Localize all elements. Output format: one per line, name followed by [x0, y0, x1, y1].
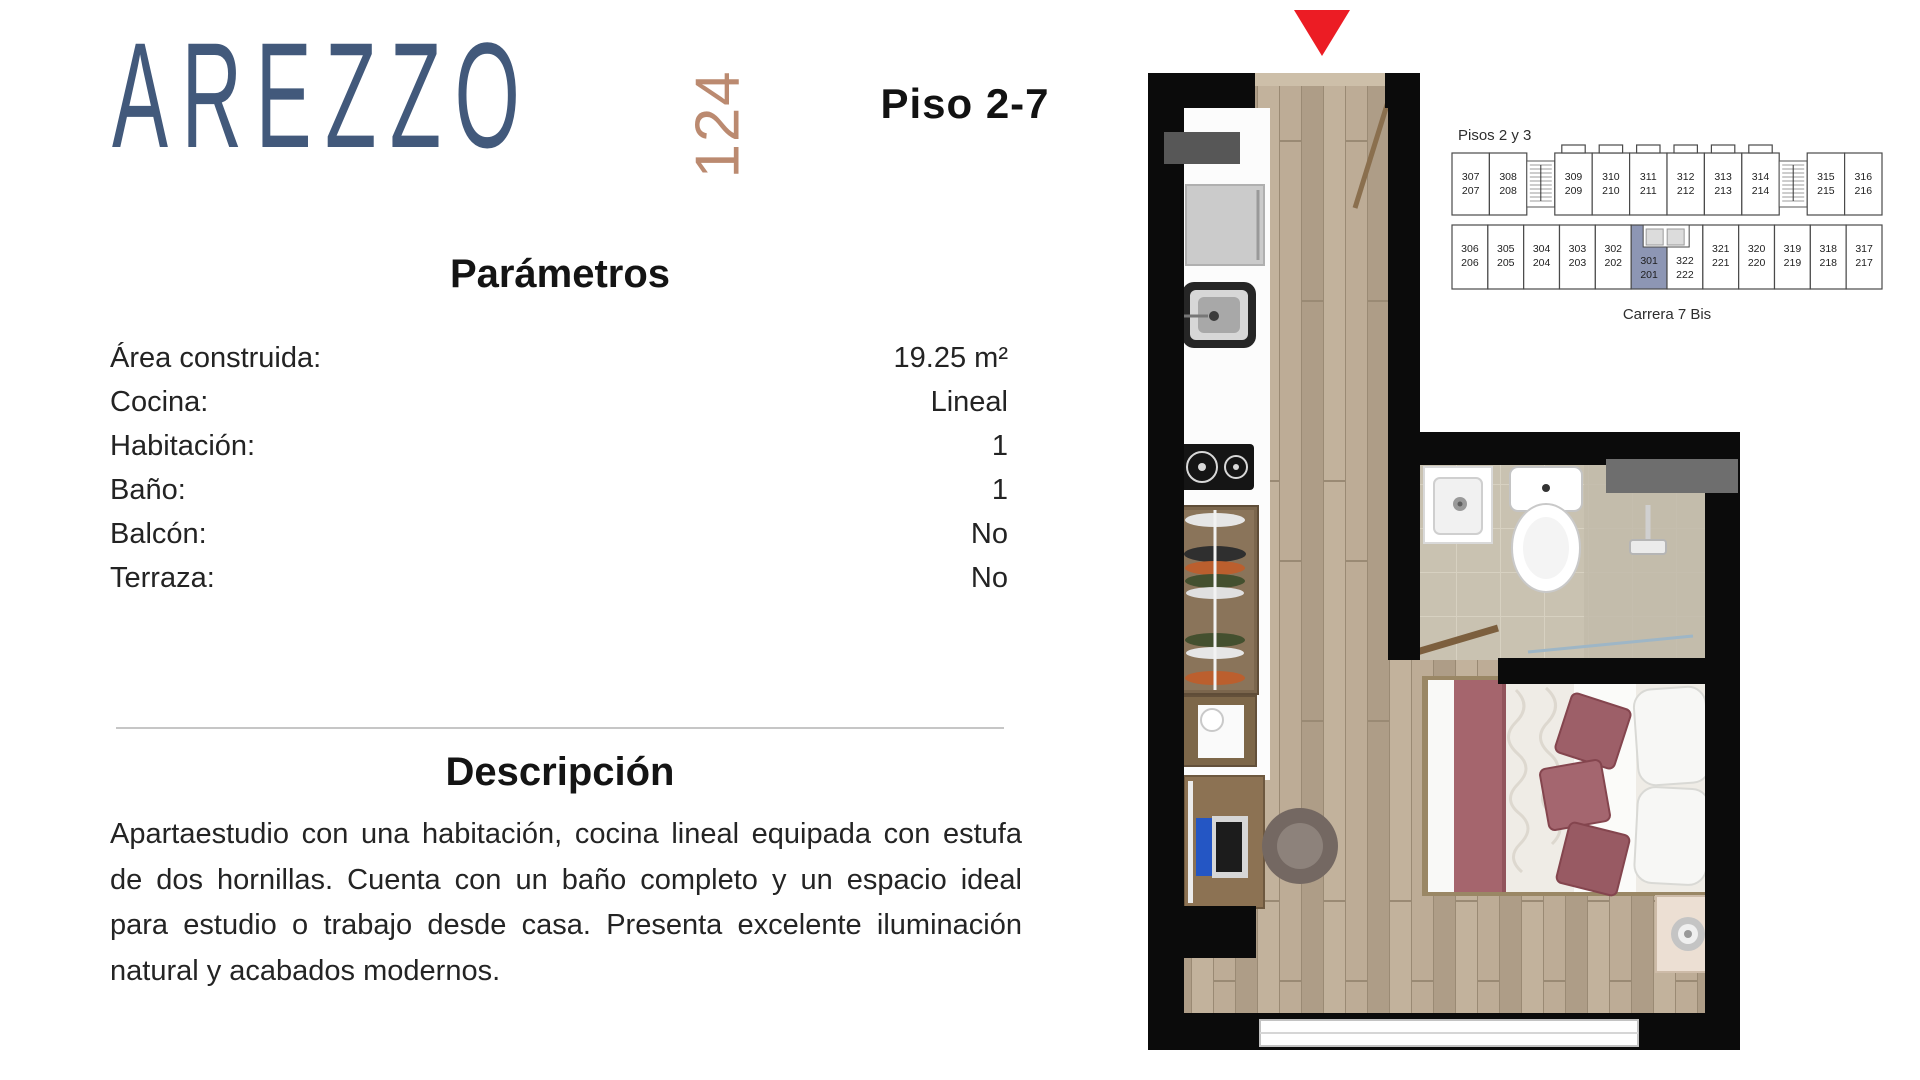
brand-name: AREZZO — [112, 20, 533, 170]
keyplan-unit — [1630, 153, 1667, 215]
brochure-page: AREZZO 124 Piso 2-7 Parámetros Área cons… — [0, 0, 1920, 1080]
svg-text:209: 209 — [1565, 185, 1583, 197]
description-body: Apartaestudio con una habitación, cocina… — [110, 812, 1022, 994]
svg-text:222: 222 — [1676, 269, 1694, 281]
svg-text:310: 310 — [1602, 171, 1620, 183]
parameter-label: Baño: — [110, 474, 186, 507]
entry-threshold — [1255, 73, 1385, 86]
keyplan-unit — [1667, 153, 1704, 215]
kitchen-linear — [1173, 108, 1270, 780]
svg-text:304: 304 — [1533, 243, 1551, 255]
street-label: Carrera 7 Bis — [1452, 306, 1882, 323]
svg-text:215: 215 — [1817, 185, 1835, 197]
brand-number-box: 124 — [687, 68, 749, 180]
svg-text:321: 321 — [1712, 243, 1730, 255]
fridge-icon — [1186, 185, 1264, 265]
svg-text:207: 207 — [1462, 185, 1480, 197]
svg-text:313: 313 — [1714, 171, 1732, 183]
key-plan: Pisos 2 y 3 3072073082083092093102103112… — [1452, 106, 1882, 323]
toilet-icon — [1510, 467, 1582, 592]
svg-text:208: 208 — [1499, 185, 1517, 197]
parameter-row: Terraza:No — [110, 556, 1008, 600]
svg-text:218: 218 — [1819, 257, 1837, 269]
parameters-list: Área construida:19.25 m²Cocina:LinealHab… — [110, 336, 1008, 600]
duct-closet-icon — [1606, 459, 1738, 493]
svg-text:311: 311 — [1640, 171, 1657, 183]
parameter-row: Habitación:1 — [110, 424, 1008, 468]
window-icon — [1260, 1020, 1638, 1046]
svg-text:306: 306 — [1461, 243, 1479, 255]
parameter-row: Baño:1 — [110, 468, 1008, 512]
svg-text:302: 302 — [1604, 243, 1622, 255]
section-divider — [116, 727, 1004, 729]
svg-text:206: 206 — [1461, 257, 1479, 269]
keyplan-unit — [1807, 153, 1844, 215]
svg-text:312: 312 — [1677, 171, 1695, 183]
elevator-icon — [1667, 229, 1684, 245]
parameter-label: Terraza: — [110, 562, 215, 595]
svg-text:210: 210 — [1602, 185, 1620, 197]
parameter-row: Cocina:Lineal — [110, 380, 1008, 424]
parameter-row: Área construida:19.25 m² — [110, 336, 1008, 380]
dish-cabinet-icon — [1176, 506, 1258, 694]
svg-text:201: 201 — [1640, 269, 1658, 281]
svg-text:301: 301 — [1640, 255, 1658, 267]
keyplan-unit — [1592, 153, 1629, 215]
svg-text:214: 214 — [1752, 185, 1770, 197]
keyplan-unit — [1742, 153, 1779, 215]
entrance-marker-icon — [1294, 10, 1350, 56]
brand-logo: AREZZO 124 — [112, 20, 672, 180]
keyplan-diagram: 3072073082083092093102103112113122123132… — [1452, 143, 1882, 293]
parameter-value: 1 — [992, 474, 1008, 507]
side-table-icon — [1178, 696, 1256, 766]
svg-text:303: 303 — [1569, 243, 1587, 255]
stove-icon — [1178, 444, 1254, 490]
parameter-label: Habitación: — [110, 430, 255, 463]
parameters-title: Parámetros — [110, 252, 1010, 297]
svg-text:219: 219 — [1784, 257, 1802, 269]
bathroom-sink-icon — [1424, 467, 1492, 543]
elevator-icon — [1646, 229, 1663, 245]
sink-icon — [1173, 282, 1256, 348]
svg-text:314: 314 — [1752, 171, 1770, 183]
svg-text:216: 216 — [1855, 185, 1873, 197]
svg-text:307: 307 — [1462, 171, 1480, 183]
keyplan-unit — [1489, 153, 1526, 215]
parameter-row: Balcón:No — [110, 512, 1008, 556]
svg-text:220: 220 — [1748, 257, 1766, 269]
svg-text:315: 315 — [1817, 171, 1835, 183]
svg-text:317: 317 — [1855, 243, 1873, 255]
svg-text:203: 203 — [1569, 257, 1587, 269]
svg-text:316: 316 — [1855, 171, 1873, 183]
svg-text:213: 213 — [1714, 185, 1732, 197]
laptop-desk-icon — [1184, 776, 1264, 908]
svg-text:319: 319 — [1784, 243, 1802, 255]
parameter-value: No — [971, 518, 1008, 551]
brand-number: 124 — [683, 69, 754, 178]
keyplan-unit — [1704, 153, 1741, 215]
entry-closet-icon — [1164, 132, 1240, 164]
svg-text:217: 217 — [1855, 257, 1873, 269]
parameter-label: Cocina: — [110, 386, 208, 419]
parameter-value: 19.25 m² — [894, 342, 1008, 375]
svg-text:309: 309 — [1565, 171, 1583, 183]
keyplan-unit — [1845, 153, 1882, 215]
svg-text:204: 204 — [1533, 257, 1551, 269]
desk-chair-icon — [1262, 808, 1338, 884]
keyplan-unit — [1452, 153, 1489, 215]
svg-text:305: 305 — [1497, 243, 1515, 255]
bathroom — [1410, 465, 1705, 660]
svg-text:221: 221 — [1712, 257, 1730, 269]
svg-text:212: 212 — [1677, 185, 1695, 197]
parameter-value: 1 — [992, 430, 1008, 463]
svg-text:322: 322 — [1676, 255, 1694, 267]
parameter-value: No — [971, 562, 1008, 595]
svg-text:202: 202 — [1604, 257, 1622, 269]
bed-icon — [1422, 676, 1718, 897]
parameter-label: Balcón: — [110, 518, 207, 551]
keyplan-unit — [1555, 153, 1592, 215]
floor-range-heading: Piso 2-7 — [850, 80, 1080, 128]
parameter-value: Lineal — [931, 386, 1008, 419]
svg-text:205: 205 — [1497, 257, 1515, 269]
svg-text:308: 308 — [1499, 171, 1517, 183]
svg-text:320: 320 — [1748, 243, 1766, 255]
description-title: Descripción — [110, 750, 1010, 795]
parameter-label: Área construida: — [110, 342, 321, 375]
svg-text:318: 318 — [1819, 243, 1837, 255]
svg-text:211: 211 — [1640, 185, 1657, 197]
keyplan-title: Pisos 2 y 3 — [1458, 128, 1882, 143]
